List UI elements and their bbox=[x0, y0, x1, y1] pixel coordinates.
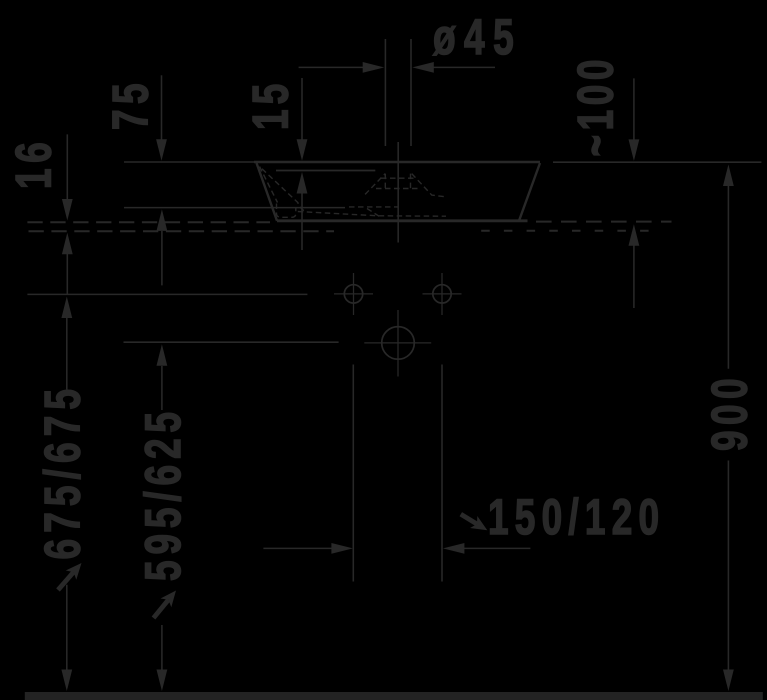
svg-text:ø45: ø45 bbox=[433, 10, 514, 66]
svg-text:900: 900 bbox=[702, 378, 758, 451]
